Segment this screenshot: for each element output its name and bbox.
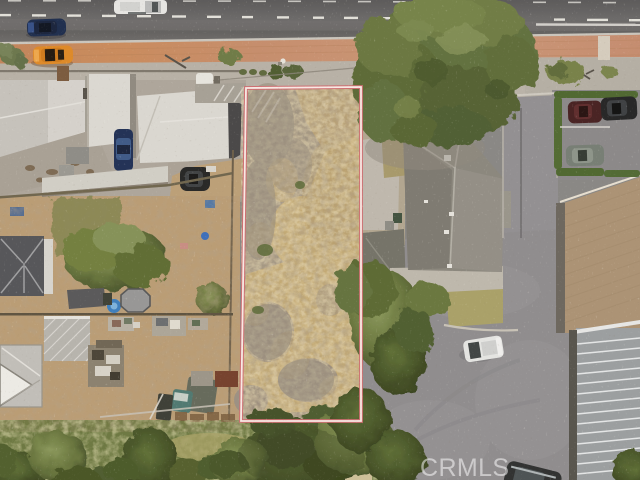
svg-text:CRMLS: CRMLS <box>420 454 510 480</box>
